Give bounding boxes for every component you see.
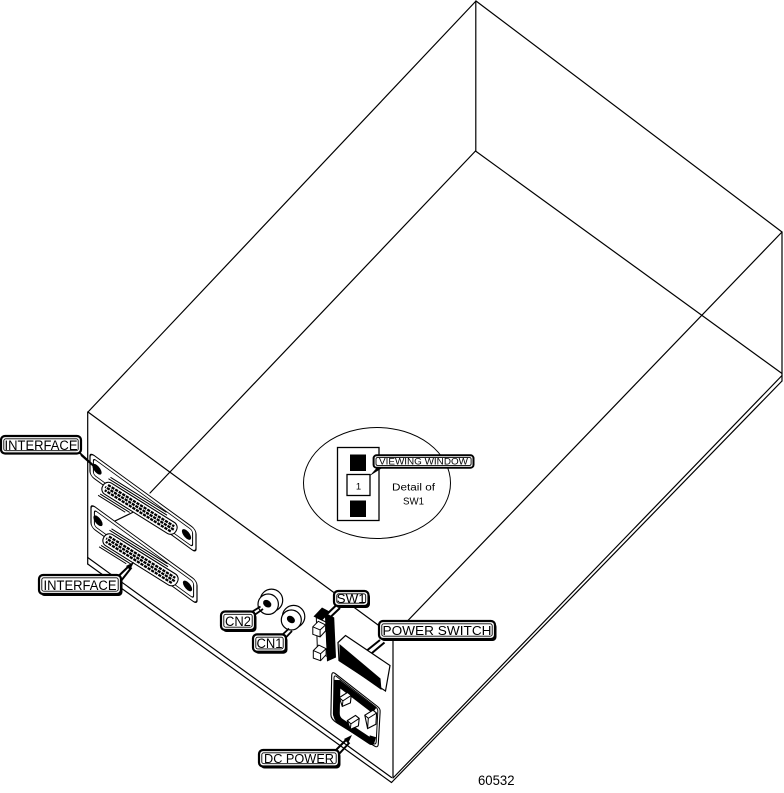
- svg-text:CN1: CN1: [257, 636, 283, 651]
- svg-text:1: 1: [356, 482, 361, 493]
- svg-text:SW1: SW1: [337, 591, 366, 606]
- svg-text:60532: 60532: [478, 773, 515, 788]
- svg-text:CN2: CN2: [225, 614, 251, 629]
- svg-text:Detail of: Detail of: [392, 483, 435, 494]
- svg-text:DC POWER: DC POWER: [264, 751, 334, 766]
- svg-text:INTERFACE: INTERFACE: [44, 578, 117, 593]
- svg-text:VIEWING WINDOW: VIEWING WINDOW: [379, 457, 468, 468]
- svg-text:SW1: SW1: [403, 497, 424, 508]
- svg-text:INTERFACE: INTERFACE: [5, 438, 78, 453]
- svg-text:POWER SWITCH: POWER SWITCH: [383, 623, 492, 638]
